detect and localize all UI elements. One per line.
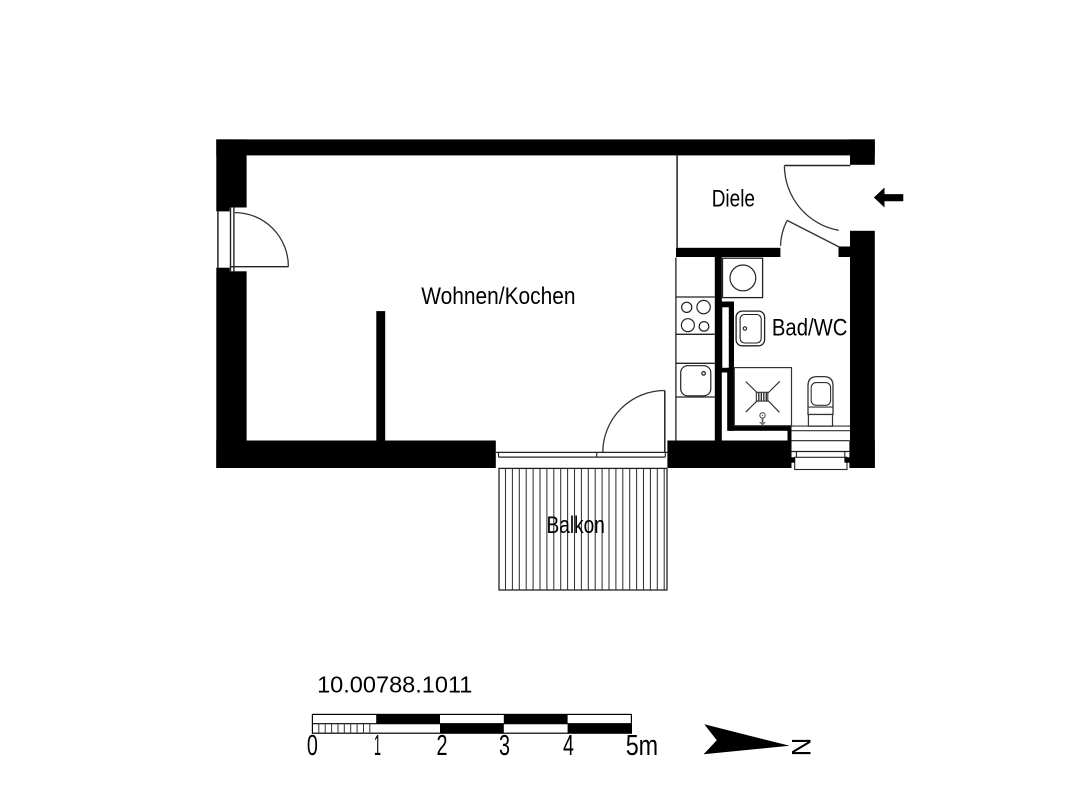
svg-text:4: 4 xyxy=(563,730,574,762)
svg-text:Balkon: Balkon xyxy=(547,512,605,539)
svg-text:10.00788.1011: 10.00788.1011 xyxy=(317,672,472,698)
svg-text:Diele: Diele xyxy=(712,185,755,212)
svg-text:5m: 5m xyxy=(626,730,658,762)
svg-text:N: N xyxy=(786,738,816,757)
svg-text:0: 0 xyxy=(307,730,318,762)
svg-text:Bad/WC: Bad/WC xyxy=(772,315,848,342)
svg-text:3: 3 xyxy=(499,730,510,762)
svg-text:Wohnen/Kochen: Wohnen/Kochen xyxy=(421,283,575,310)
svg-text:2: 2 xyxy=(437,730,448,762)
svg-text:1: 1 xyxy=(374,730,381,762)
